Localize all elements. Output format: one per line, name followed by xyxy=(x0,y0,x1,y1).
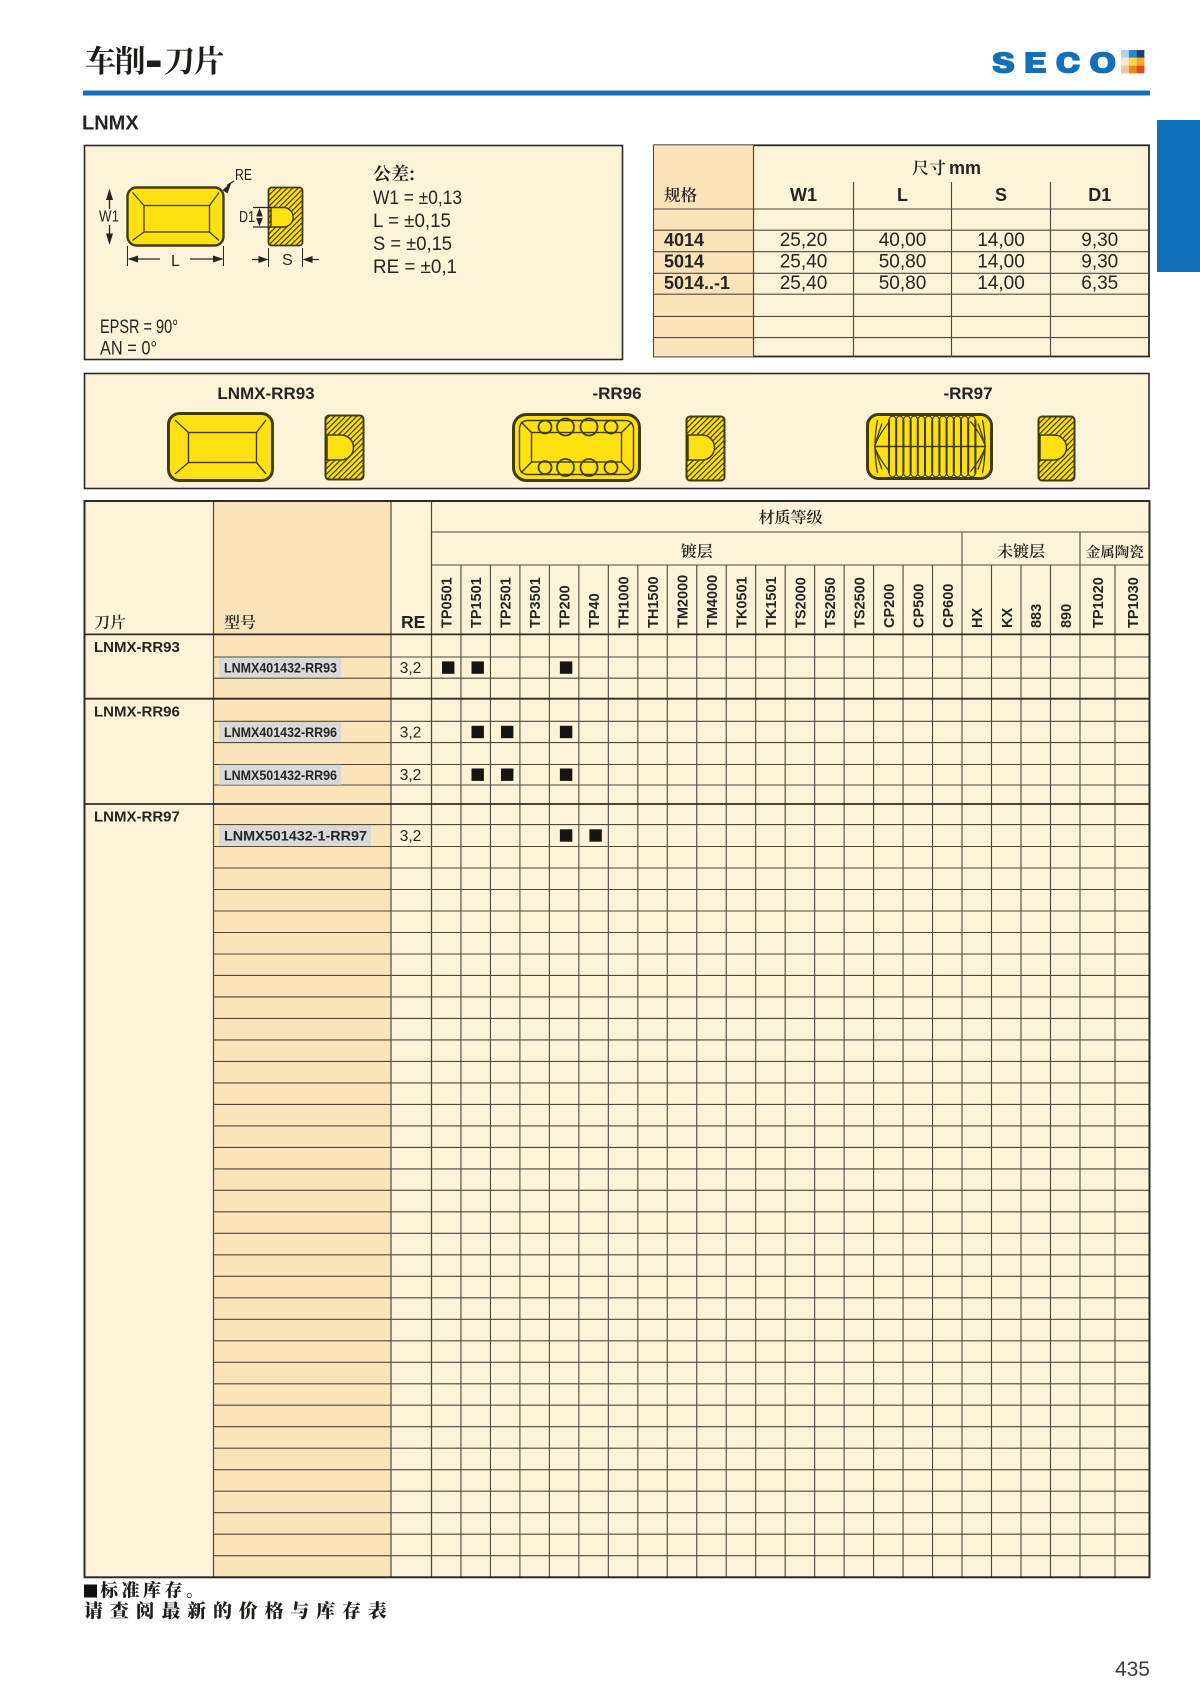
svg-text:LNMX-RR96: LNMX-RR96 xyxy=(94,703,180,720)
svg-text:TH1500: TH1500 xyxy=(646,576,662,628)
svg-text:S: S xyxy=(995,185,1007,205)
svg-text:14,00: 14,00 xyxy=(977,252,1025,273)
svg-text:L = ±0,15: L = ±0,15 xyxy=(373,210,451,232)
svg-text:14,00: 14,00 xyxy=(977,230,1025,251)
svg-text:14,00: 14,00 xyxy=(977,273,1025,294)
svg-text:40,00: 40,00 xyxy=(879,230,927,251)
svg-text:S: S xyxy=(282,252,293,269)
svg-text:mm: mm xyxy=(949,158,981,178)
svg-text:3,2: 3,2 xyxy=(400,767,422,784)
svg-text:D1: D1 xyxy=(239,209,255,226)
svg-text:890: 890 xyxy=(1059,604,1075,628)
svg-text:4014: 4014 xyxy=(664,230,704,250)
svg-text:25,40: 25,40 xyxy=(780,273,828,294)
svg-text:W1 = ±0,13: W1 = ±0,13 xyxy=(373,187,462,209)
svg-text:TP200: TP200 xyxy=(558,585,574,628)
svg-text:883: 883 xyxy=(1029,604,1045,628)
svg-text:S = ±0,15: S = ±0,15 xyxy=(373,233,452,255)
svg-text:TP3501: TP3501 xyxy=(528,577,544,628)
svg-text:W1: W1 xyxy=(99,209,119,226)
svg-text:W1: W1 xyxy=(790,185,817,205)
svg-text:RE: RE xyxy=(235,167,252,184)
svg-text:LNMX-RR93: LNMX-RR93 xyxy=(94,639,180,656)
svg-text:LNMX401432-RR96: LNMX401432-RR96 xyxy=(224,725,337,740)
svg-text:3,2: 3,2 xyxy=(400,660,422,677)
svg-text:TM2000: TM2000 xyxy=(676,575,692,628)
svg-text:L: L xyxy=(897,185,908,205)
svg-text:TK1501: TK1501 xyxy=(764,576,780,628)
svg-text:TS2050: TS2050 xyxy=(823,577,839,628)
svg-text:TK0501: TK0501 xyxy=(735,576,751,628)
svg-text:TP1030: TP1030 xyxy=(1126,577,1142,628)
svg-text:CP500: CP500 xyxy=(911,584,927,628)
svg-text:TM4000: TM4000 xyxy=(705,575,721,628)
svg-text:5014: 5014 xyxy=(664,252,704,272)
svg-text:CP600: CP600 xyxy=(941,584,957,628)
svg-text:9,30: 9,30 xyxy=(1081,230,1118,251)
svg-text:LNMX: LNMX xyxy=(82,113,139,135)
svg-text:L: L xyxy=(171,253,180,270)
svg-text:TP1020: TP1020 xyxy=(1091,577,1107,628)
svg-text:3,2: 3,2 xyxy=(400,828,422,845)
svg-text:TP0501: TP0501 xyxy=(440,577,456,628)
svg-text:435: 435 xyxy=(1115,1658,1150,1681)
svg-text:RE: RE xyxy=(401,612,425,632)
svg-text:CP200: CP200 xyxy=(882,584,898,628)
svg-text:LNMX501432-RR96: LNMX501432-RR96 xyxy=(224,768,337,783)
svg-text:LNMX501432-1-RR97: LNMX501432-1-RR97 xyxy=(224,829,367,844)
svg-text:TP40: TP40 xyxy=(587,593,603,628)
svg-text:LNMX401432-RR93: LNMX401432-RR93 xyxy=(224,661,337,676)
svg-text:-RR96: -RR96 xyxy=(592,384,641,403)
svg-text:TS2000: TS2000 xyxy=(793,577,809,628)
svg-text:TP2501: TP2501 xyxy=(499,577,515,628)
svg-text:KX: KX xyxy=(1000,608,1016,628)
svg-text:LNMX-RR97: LNMX-RR97 xyxy=(94,809,180,826)
svg-text:50,80: 50,80 xyxy=(879,252,927,273)
svg-text:25,20: 25,20 xyxy=(780,230,828,251)
svg-text:TH1000: TH1000 xyxy=(617,576,633,628)
svg-text:HX: HX xyxy=(970,608,986,628)
svg-text:D1: D1 xyxy=(1088,185,1111,205)
svg-text:EPSR = 90°: EPSR = 90° xyxy=(100,316,178,338)
svg-text:9,30: 9,30 xyxy=(1081,252,1118,273)
svg-text:AN = 0°: AN = 0° xyxy=(100,338,157,360)
svg-text:LNMX-RR93: LNMX-RR93 xyxy=(217,384,314,403)
svg-text:-RR97: -RR97 xyxy=(943,384,992,403)
svg-text:25,40: 25,40 xyxy=(780,252,828,273)
svg-text:50,80: 50,80 xyxy=(879,273,927,294)
svg-text:TS2500: TS2500 xyxy=(852,577,868,628)
svg-text:3,2: 3,2 xyxy=(400,724,422,741)
svg-text:TP1501: TP1501 xyxy=(469,577,485,628)
svg-text:6,35: 6,35 xyxy=(1081,273,1118,294)
svg-text:RE = ±0,1: RE = ±0,1 xyxy=(373,256,457,278)
svg-text:5014..-1: 5014..-1 xyxy=(664,273,730,293)
